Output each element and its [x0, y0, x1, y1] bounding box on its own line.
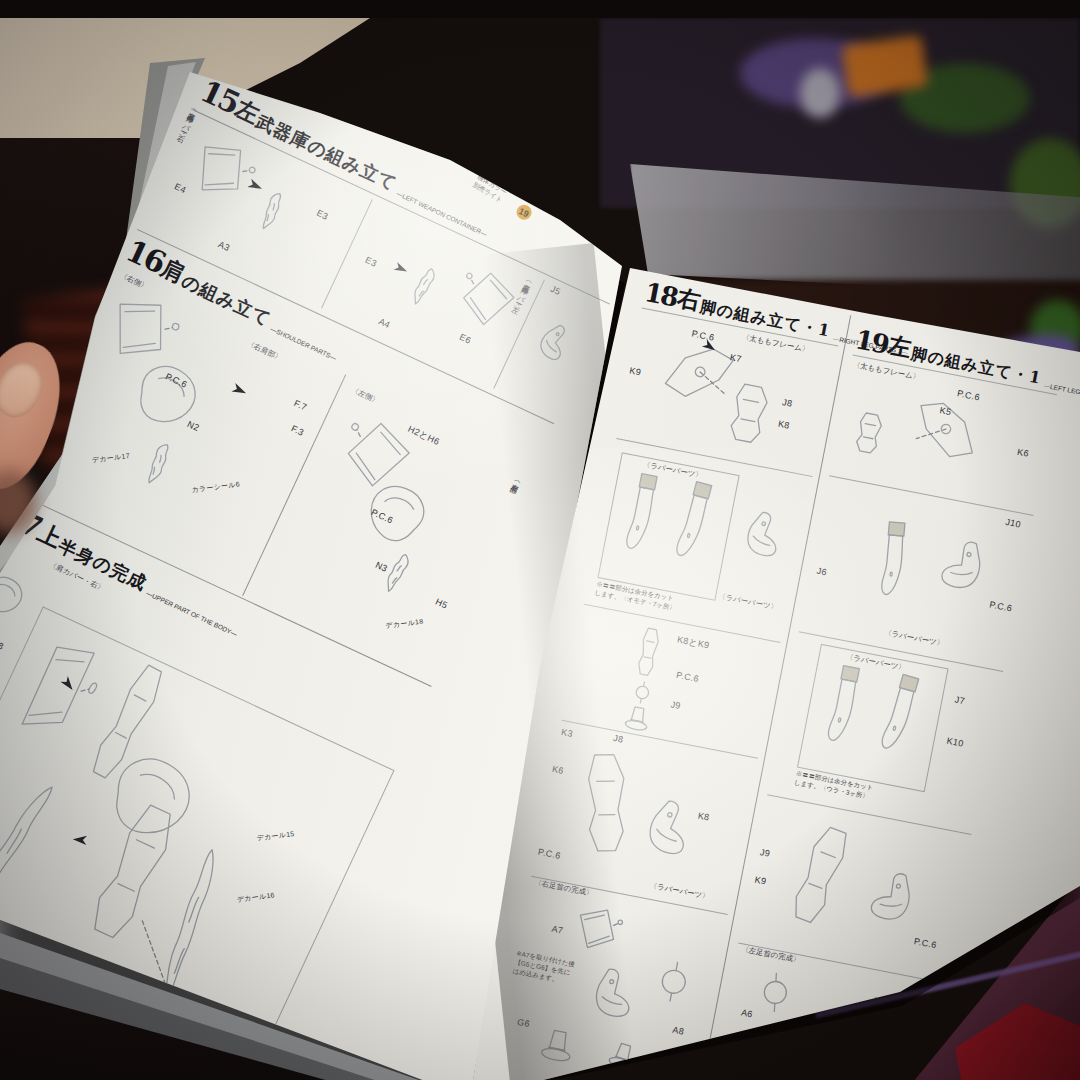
part-label: J10	[1005, 517, 1022, 530]
orange-blur-blob	[842, 35, 928, 98]
part-label: K9	[629, 365, 642, 377]
part-label: J8	[781, 397, 793, 409]
part-label: K7	[729, 352, 742, 364]
step-number: 19	[853, 324, 890, 360]
part-label: K8	[777, 419, 790, 431]
photo-scene: 15 左 武器庫の組み立て —LEFT WEAPON CONTAINER— 〈左…	[0, 18, 1080, 1080]
part-label: A5	[893, 1070, 906, 1080]
part-label: H5	[434, 596, 449, 610]
step-number: 18	[642, 277, 679, 313]
gray-glint-blob	[800, 68, 840, 118]
part-label: A6	[740, 1007, 753, 1019]
decal-label: デカール17	[91, 451, 130, 466]
part-label: P.C.6	[989, 599, 1013, 613]
part-label: K6	[1016, 447, 1029, 459]
decal-label: デカール16	[236, 890, 275, 905]
part-label: K5	[939, 405, 952, 417]
decal-label: デカール15	[256, 829, 295, 844]
part-label: P.C.6	[913, 936, 937, 950]
arrow-icon	[68, 832, 91, 848]
step-title-en: —UPPER PART OF THE BODY—	[145, 590, 238, 638]
part-label: J7	[954, 694, 966, 706]
diagram-foot-platform-left	[743, 1066, 820, 1080]
